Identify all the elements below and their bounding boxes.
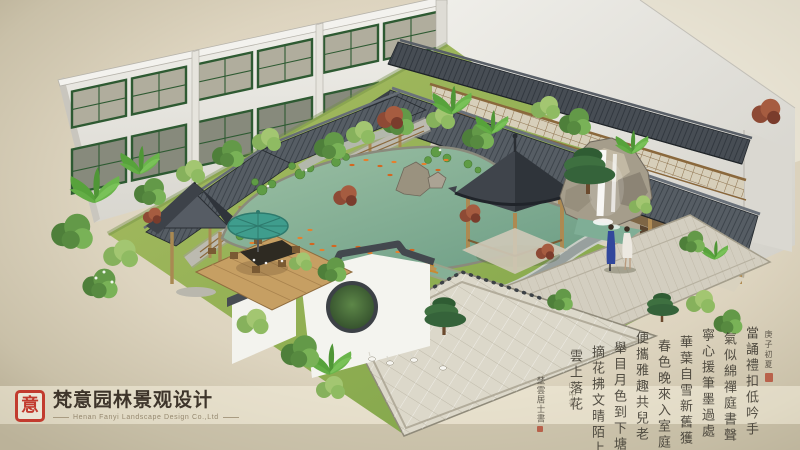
calligraphy-column: 寧心援筆墨過處 (700, 328, 713, 450)
calligraphy-column: 華葉自雪新舊獲 (678, 335, 691, 450)
red-seal-icon (537, 426, 543, 432)
calligraphy-signature-secondary: 山中書 (567, 381, 578, 408)
divider-line (53, 417, 69, 418)
company-name-en: Henan Fanyi Landscape Design Co.,Ltd (53, 414, 239, 421)
landscape-rendering: 當誦禮扣低吟手 氣似綿禪庭書聲 寧心援筆墨過處 華葉自雪新舊獲 春色晚來入室庭 … (0, 0, 800, 450)
company-name-zh: 梵意园林景观设计 (53, 390, 239, 412)
calligraphy-column: 摘花拂文晴陌上 (590, 345, 603, 450)
calligraphy-column: 當誦禮扣低吟手 (744, 326, 757, 450)
divider-line (223, 417, 239, 418)
calligraphy-column: 氣似綿禪庭書聲 (722, 332, 735, 450)
calligraphy-column: 舉目月色到下塘 (612, 341, 625, 450)
calligraphy-panel: 當誦禮扣低吟手 氣似綿禪庭書聲 寧心援筆墨過處 華葉自雪新舊獲 春色晚來入室庭 … (568, 326, 757, 450)
calligraphy-column: 春色晚來入室庭 (656, 339, 669, 450)
red-seal-icon (765, 373, 773, 382)
calligraphy-header: 庚子初夏 (763, 330, 774, 382)
calligraphy-signature: 埜雲居士書 (534, 376, 546, 432)
calligraphy-column: 便攜雅趣共兒老 (634, 331, 647, 450)
company-logo: 意 梵意园林景观设计 Henan Fanyi Landscape Design … (15, 390, 239, 422)
company-seal-icon: 意 (15, 390, 45, 422)
